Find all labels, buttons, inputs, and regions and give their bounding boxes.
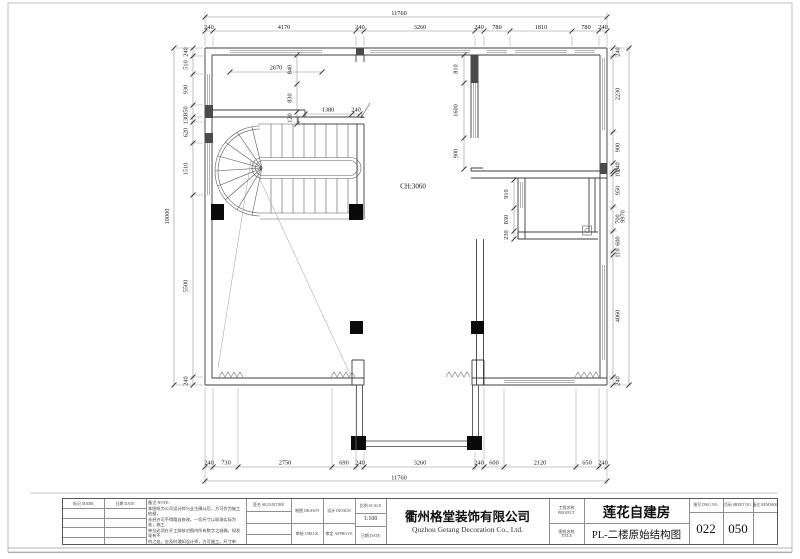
drawn-by-label: 制图 DRAWN <box>291 499 323 523</box>
beam-lines <box>218 160 350 374</box>
dim-label: 510 <box>183 60 190 69</box>
checker-label: 审核 CHECK <box>291 523 323 547</box>
dim-label: 1600 <box>453 104 460 117</box>
note-line: 单位必须在开工前核对图内所有数字之准确，如发现有不 <box>148 528 243 539</box>
dim-label: 810 <box>453 64 460 73</box>
dim-label: 240 <box>183 47 190 56</box>
porch <box>357 385 479 447</box>
dim-label: 240 <box>598 460 607 467</box>
dim-label: 930 <box>183 85 190 94</box>
dim-label: 240 <box>615 376 622 385</box>
dim-label: 780 <box>492 24 501 31</box>
dim-label: 240 <box>598 24 607 31</box>
approver-label: 审定 APPROVE <box>323 523 355 547</box>
divider <box>63 508 146 509</box>
dim-label: 130 <box>183 115 190 124</box>
dimension-lines <box>174 17 629 481</box>
revision-date-header: 日期 DATE <box>104 499 146 508</box>
leader-arrow <box>361 103 370 118</box>
dwg-no-value: 022 <box>689 512 723 546</box>
dim-label: 690 <box>339 460 348 467</box>
dim-label: 650 <box>582 460 591 467</box>
scale-label: 比例 SCALE <box>355 499 386 513</box>
dim-label: 240 <box>355 24 364 31</box>
dim-label: 240 <box>474 24 483 31</box>
dim-label: 240 <box>204 24 213 31</box>
dim-label: 240 <box>355 460 364 467</box>
drawing-label: 图纸名称 TITLE <box>549 523 584 547</box>
company-name-cn: 衢州格堂装饰有限公司 <box>405 510 530 524</box>
door-symbol <box>583 226 592 235</box>
sheet-frame <box>8 3 792 553</box>
dim-label: 240 <box>351 107 360 114</box>
dim-label: 2670 <box>270 65 283 72</box>
dim-label: 2120 <box>534 460 547 467</box>
divider <box>63 527 146 528</box>
dim-label: 1380 <box>322 107 335 114</box>
project-label-en: PROJECT <box>558 511 575 516</box>
dim-label: 830 <box>287 93 294 102</box>
dim-label: 780 <box>581 24 590 31</box>
divider <box>246 534 291 535</box>
divider <box>146 499 147 544</box>
sheet-no-label: 页码 SHEET NO. <box>723 499 753 512</box>
dim-label: 11760 <box>391 10 407 17</box>
divider <box>246 523 291 524</box>
drawing-sheet: 11760 240 4170 240 3260 240 780 1810 780… <box>0 0 800 559</box>
divider <box>63 537 146 538</box>
date-label: 日期 DATE <box>355 526 386 547</box>
dim-label: 830 <box>503 215 510 224</box>
scale-value: 1:100 <box>355 513 386 526</box>
dwg-no-label: 图号 DWG NO. <box>689 499 723 512</box>
dim-label: 1510 <box>183 163 190 176</box>
dim-label: 3260 <box>414 460 427 467</box>
dim-label: 10000 <box>164 209 171 225</box>
columns <box>211 204 484 450</box>
dim-label: 900 <box>615 143 622 152</box>
dim-labels: 11760 240 4170 240 3260 240 780 1810 780… <box>164 10 627 482</box>
dim-label: 4170 <box>278 24 291 31</box>
note-line: 本图纸为公司设计师与业主确认后，方可作为施工依据， <box>148 506 243 517</box>
ceiling-height-label: CH:3060 <box>400 183 426 191</box>
floor-plan-drawing: 11760 240 4170 240 3260 240 780 1810 780… <box>0 0 800 559</box>
designer-label: 设计 DESIGN <box>323 499 355 523</box>
dim-label: 110 <box>615 248 622 257</box>
dim-label: 900 <box>453 149 460 158</box>
dim-label: 240 <box>615 47 622 56</box>
title-block: 标记 MARK 日期 DATE 备注 NOTE: 本图纸为公司设计师与业主确认后… <box>62 498 778 545</box>
company-name-en: Quzhou Getang Decoration Co., Ltd. <box>412 526 523 535</box>
drawing-label-en: TITLE <box>561 534 572 539</box>
company-block: 衢州格堂装饰有限公司 Quzhou Getang Decoration Co.,… <box>386 499 549 546</box>
dimension-ticks <box>172 15 632 484</box>
note-line: 未经许可不得擅自修改。一切尺寸以现场实际为准，施工 <box>148 517 243 528</box>
dim-label: 840 <box>287 65 294 74</box>
dim-label: 11760 <box>391 475 407 482</box>
signature-header: 签名 SIGNATURE <box>246 499 291 511</box>
divider <box>246 511 291 512</box>
extension-lines <box>176 12 631 484</box>
note-line: 符之处，应及时通知设计师，方可施工。尺寸单位：均以 <box>148 539 243 544</box>
walls <box>205 48 607 385</box>
revision-mark-header: 标记 MARK <box>63 499 104 508</box>
dim-label: 4060 <box>615 310 622 323</box>
dim-label: 2230 <box>615 88 622 101</box>
dim-label: 3260 <box>414 24 427 31</box>
dim-label: 620 <box>183 128 190 137</box>
note-label: 备注 NOTE: <box>148 500 170 505</box>
dim-label: 350 <box>183 106 190 115</box>
dim-label: 240 <box>474 460 483 467</box>
dim-label: 910 <box>503 189 510 198</box>
dim-label: 730 <box>221 460 230 467</box>
dim-label: 950 <box>615 186 622 195</box>
project-label: 工程名称 PROJECT <box>549 499 584 523</box>
wall-fills <box>205 48 607 174</box>
dim-label: 100 <box>615 168 622 177</box>
sheet-no-value: 050 <box>723 512 753 546</box>
dim-label: 240 <box>183 376 190 385</box>
project-name: 莲花自建房 <box>584 499 689 523</box>
drawing-name: PL-二楼原始结构图 <box>584 523 689 547</box>
dim-label: 230 <box>503 230 510 239</box>
dim-label: 1810 <box>535 24 548 31</box>
notes-block: 备注 NOTE: 本图纸为公司设计师与业主确认后，方可作为施工依据， 未经许可不… <box>148 500 243 544</box>
dim-label: 5500 <box>183 280 190 293</box>
stair <box>215 124 364 219</box>
dim-label: 600 <box>615 236 622 245</box>
divider <box>63 518 146 519</box>
dim-label: 9970 <box>620 210 627 223</box>
zigzag-marks <box>219 372 599 377</box>
dim-label: 600 <box>489 460 498 467</box>
remark-label: 备注 REMARK <box>753 499 777 512</box>
dim-label: 240 <box>204 460 213 467</box>
windows <box>207 50 604 382</box>
dim-label: 2750 <box>279 460 292 467</box>
remark-value <box>753 512 777 546</box>
dim-label: 120 <box>287 113 294 122</box>
